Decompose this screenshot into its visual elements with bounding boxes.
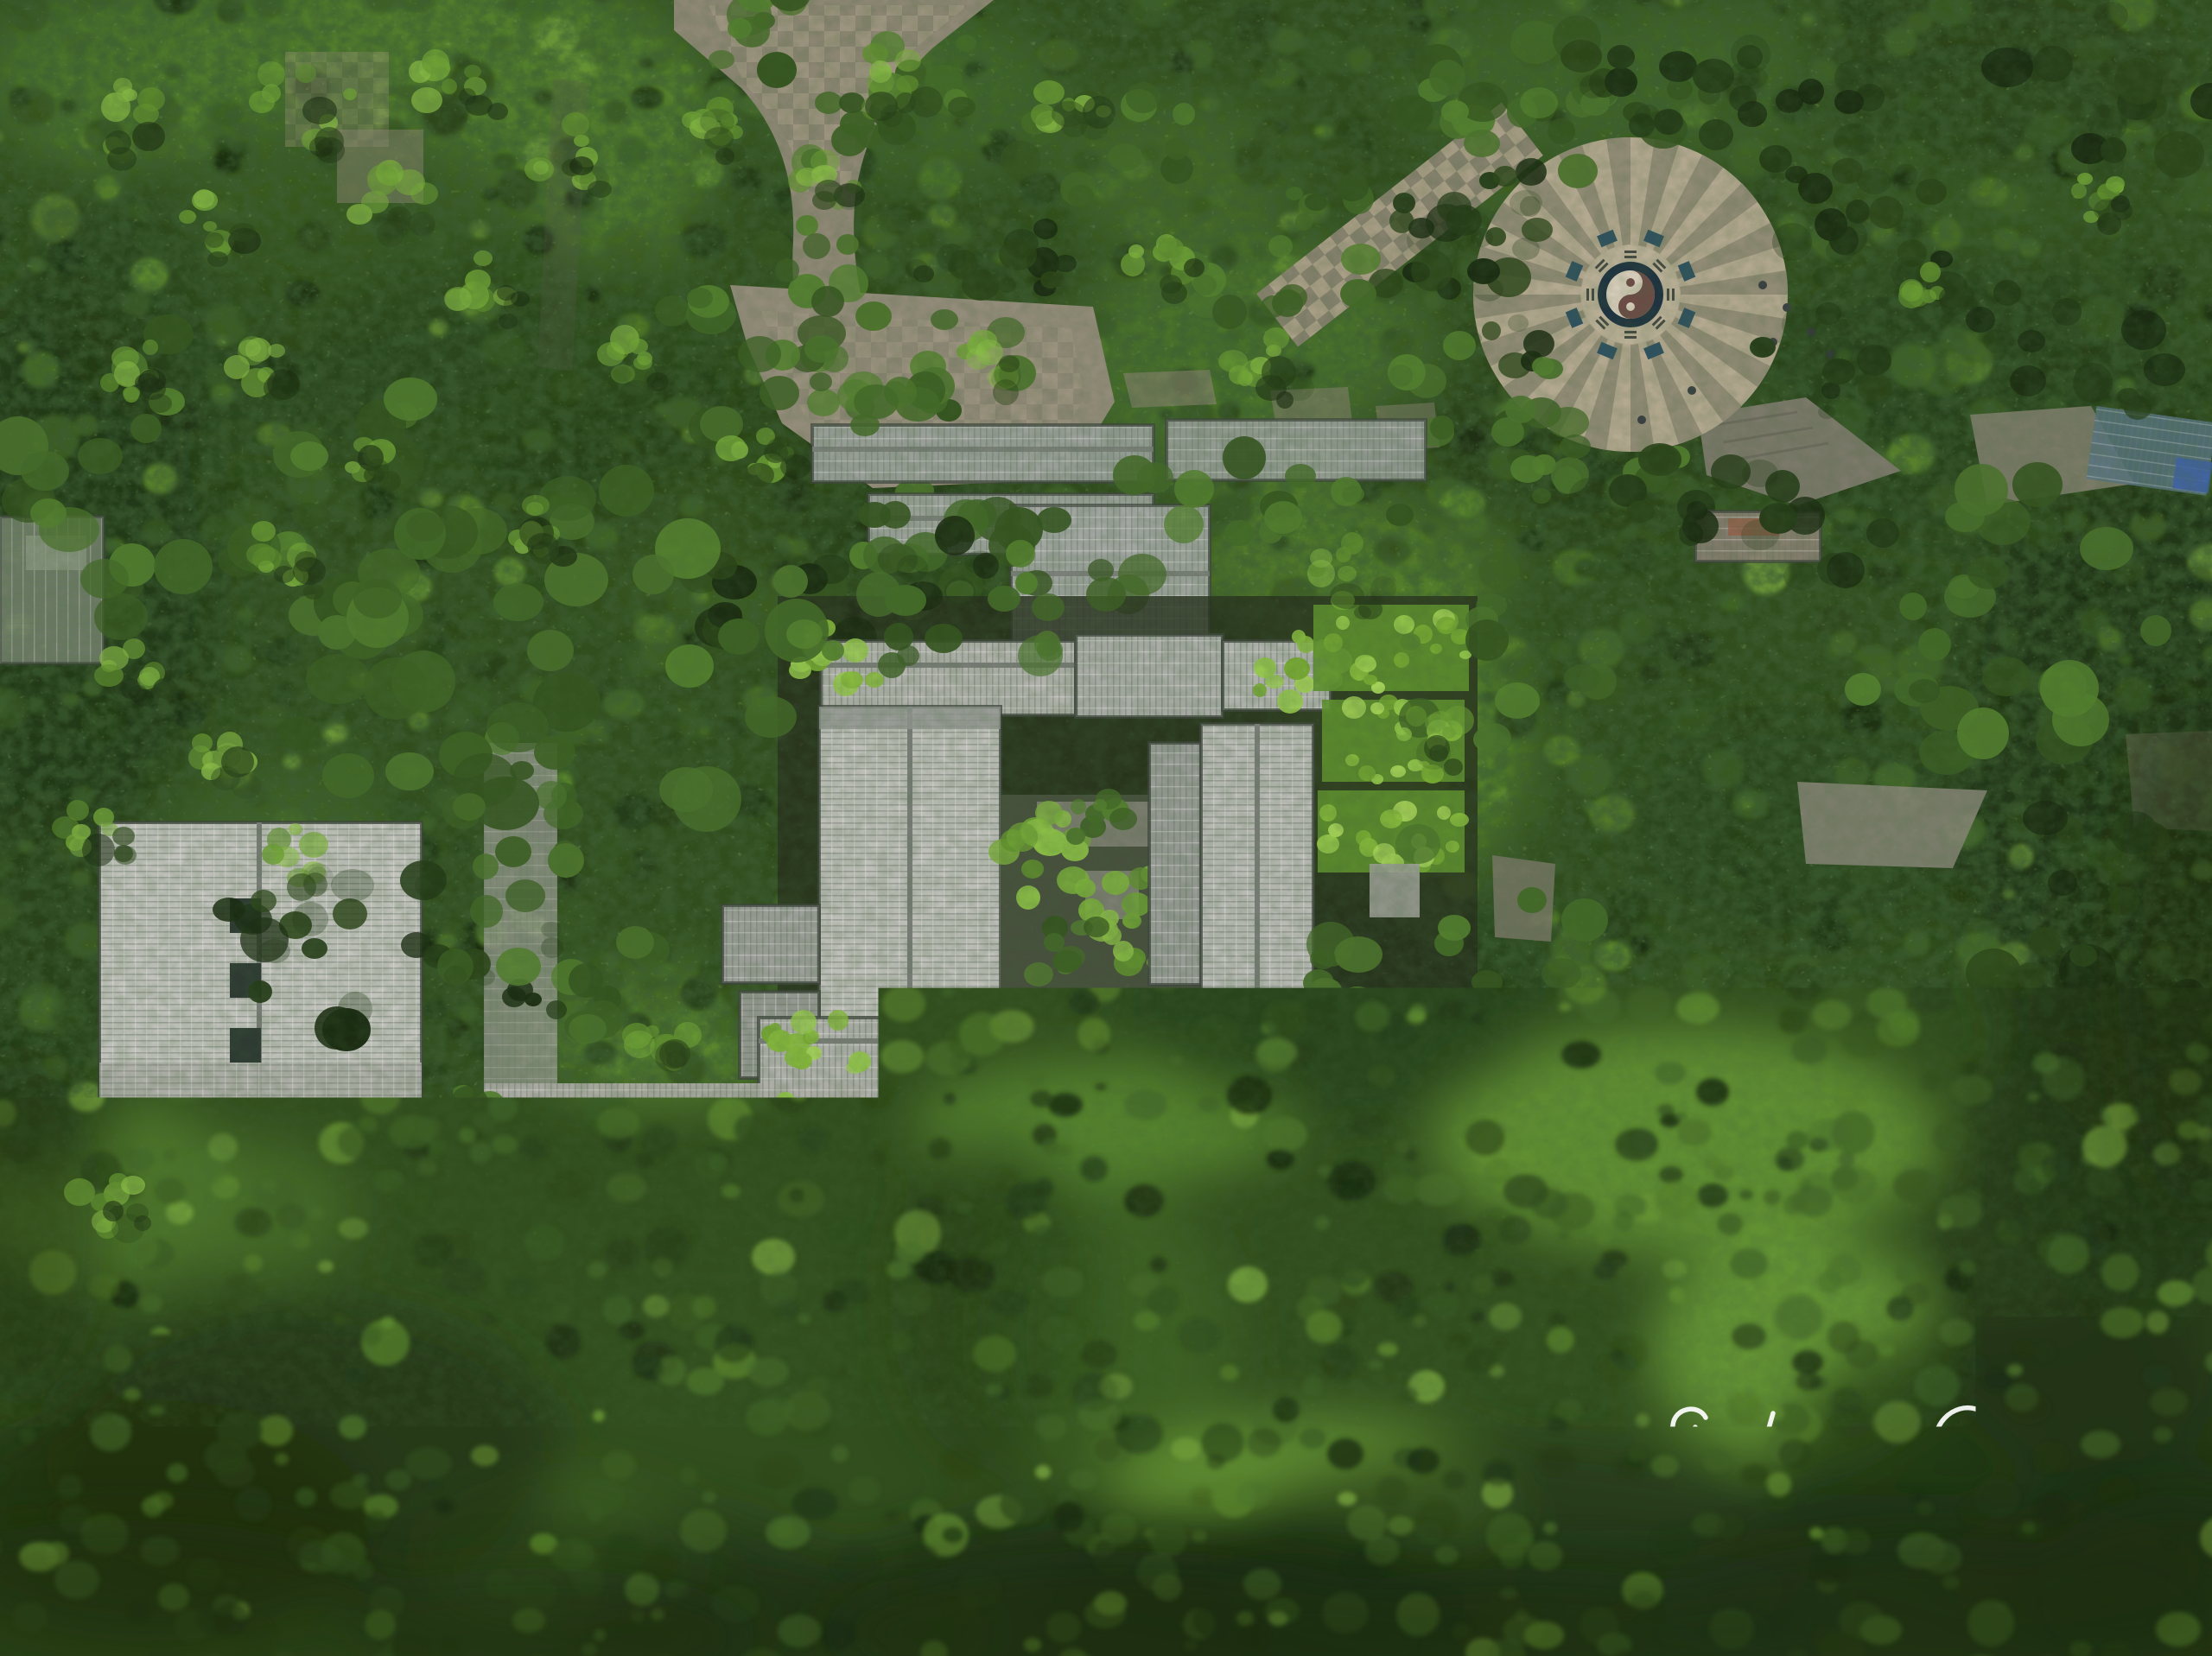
svg-text:Photographe: Photographe	[1785, 1537, 1908, 1564]
